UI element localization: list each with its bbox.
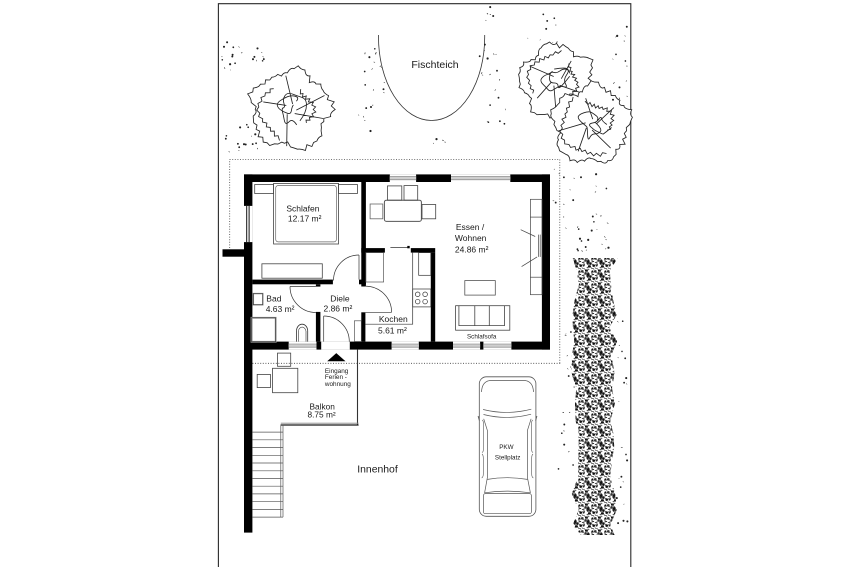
svg-text:Essen /: Essen /	[456, 222, 485, 232]
svg-text:Bad: Bad	[266, 294, 281, 304]
svg-text:2.86 m²: 2.86 m²	[323, 303, 352, 313]
svg-text:12.17 m²: 12.17 m²	[288, 214, 322, 224]
svg-text:Diele: Diele	[330, 294, 350, 304]
svg-text:Wohnen: Wohnen	[455, 233, 487, 243]
svg-text:wohnung: wohnung	[324, 381, 351, 388]
svg-text:5.61 m²: 5.61 m²	[378, 326, 407, 336]
svg-text:24.86 m²: 24.86 m²	[455, 244, 489, 254]
svg-text:8.75 m²: 8.75 m²	[308, 410, 336, 420]
svg-text:Innenhof: Innenhof	[357, 464, 398, 475]
svg-text:4.63 m²: 4.63 m²	[266, 304, 295, 314]
svg-text:Schlafsofa: Schlafsofa	[467, 333, 497, 340]
svg-text:Fischteich: Fischteich	[411, 59, 458, 71]
svg-text:Schlafen: Schlafen	[286, 203, 319, 213]
svg-text:PKW: PKW	[499, 444, 513, 451]
svg-text:Kochen: Kochen	[379, 314, 408, 324]
svg-text:Stellplatz: Stellplatz	[495, 454, 521, 461]
